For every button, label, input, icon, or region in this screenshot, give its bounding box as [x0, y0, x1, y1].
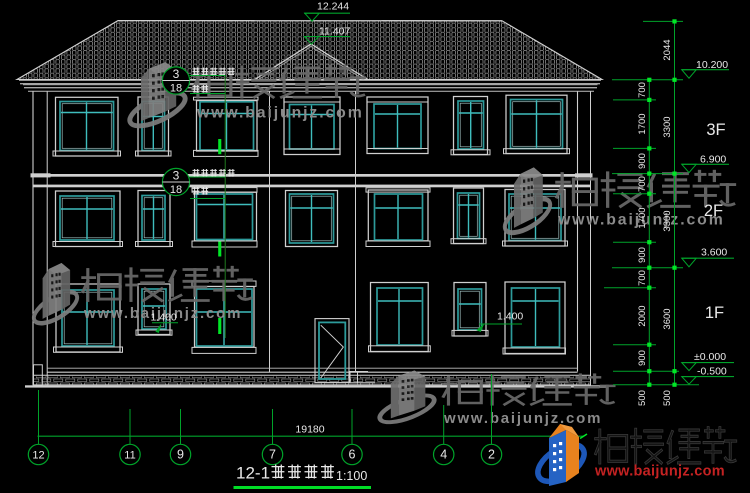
svg-text:12.244: 12.244 — [317, 1, 349, 13]
svg-text:1700: 1700 — [637, 113, 648, 134]
svg-text:3300: 3300 — [662, 116, 673, 137]
svg-text:900: 900 — [637, 153, 648, 169]
svg-text:2044: 2044 — [662, 39, 673, 60]
svg-text:1.400: 1.400 — [497, 311, 523, 323]
svg-text:19180: 19180 — [295, 424, 324, 436]
svg-text:3600: 3600 — [662, 308, 673, 329]
svg-text:3: 3 — [173, 168, 180, 182]
svg-text:700: 700 — [637, 82, 648, 98]
svg-text:3300: 3300 — [662, 210, 673, 231]
svg-text:www.baijunjz.com: www.baijunjz.com — [196, 105, 364, 122]
svg-text:www.baijunjz.com: www.baijunjz.com — [594, 464, 725, 480]
svg-text:6.900: 6.900 — [700, 154, 726, 166]
svg-text:4: 4 — [440, 448, 447, 462]
svg-text:2000: 2000 — [637, 305, 648, 326]
svg-text:12-1: 12-1 — [236, 464, 270, 483]
svg-text:www.baijunjz.com: www.baijunjz.com — [443, 410, 602, 427]
svg-text:500: 500 — [637, 390, 648, 406]
svg-text:1.400: 1.400 — [151, 312, 177, 324]
svg-text:500: 500 — [662, 390, 673, 406]
svg-text:11: 11 — [124, 450, 135, 462]
svg-text:3: 3 — [173, 67, 180, 81]
svg-text:2: 2 — [488, 448, 495, 462]
svg-text:12: 12 — [32, 450, 44, 462]
svg-text:±0.000: ±0.000 — [694, 351, 726, 363]
svg-text:700: 700 — [637, 270, 648, 286]
svg-text:700: 700 — [637, 176, 648, 192]
svg-text:3F: 3F — [706, 121, 725, 139]
svg-text:900: 900 — [637, 350, 648, 366]
svg-text:3.600: 3.600 — [701, 247, 727, 259]
svg-text:1700: 1700 — [637, 207, 648, 228]
svg-text:2F: 2F — [704, 202, 723, 220]
svg-text:11.407: 11.407 — [319, 26, 350, 38]
svg-text:-0.500: -0.500 — [697, 366, 727, 378]
svg-text:18: 18 — [170, 83, 182, 95]
svg-text:18: 18 — [170, 184, 182, 196]
svg-text:9: 9 — [177, 448, 184, 462]
svg-text:7: 7 — [269, 448, 276, 462]
svg-text:6: 6 — [349, 448, 356, 462]
svg-text:1F: 1F — [705, 304, 724, 322]
svg-text:900: 900 — [637, 247, 648, 263]
svg-text:1:100: 1:100 — [336, 469, 367, 483]
